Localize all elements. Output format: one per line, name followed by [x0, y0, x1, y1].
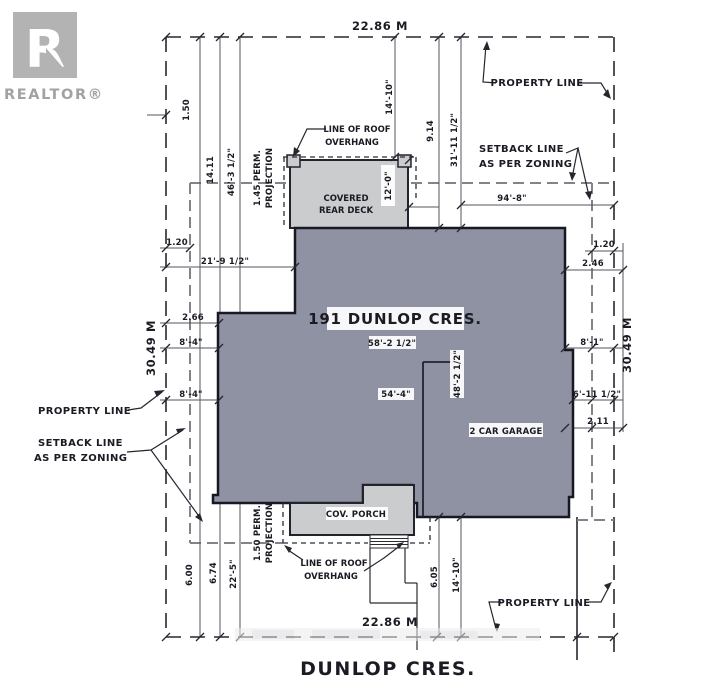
roof-overhang-label-bottom-2: OVERHANG: [304, 572, 358, 582]
dim-right-94: 94'-8": [497, 194, 527, 204]
arrowhead: [585, 191, 592, 200]
dim-right-246: 2.46: [582, 259, 604, 269]
dim-left-84-upper: 8'-4": [179, 338, 202, 348]
watermark-blob: [312, 630, 380, 639]
watermark-blob: [252, 630, 294, 639]
dim-58: 58'-2 1/2": [368, 339, 416, 349]
roof-overhang-label-top-1: LINE OF ROOF: [323, 125, 390, 135]
leader-setback-top-b: [578, 148, 589, 196]
leader-setback-left-a: [127, 430, 183, 452]
leader-overhang-top: [295, 129, 326, 154]
house: [213, 228, 573, 517]
roof-overhang-label-bottom-1: LINE OF ROOF: [300, 559, 367, 569]
watermark: [235, 628, 540, 641]
dim-48: 48'-2 1/2": [453, 350, 463, 398]
property-line-label-top: PROPERTY LINE: [491, 78, 584, 89]
property-line-label-bottom: PROPERTY LINE: [498, 598, 591, 609]
dim-bottom-perm2: PROJECTION: [265, 503, 275, 564]
street-name-label: DUNLOP CRES.: [300, 658, 476, 680]
arrowhead: [569, 172, 576, 181]
as-per-zoning-label-left: AS PER ZONING: [34, 453, 127, 464]
dim-left-perm: 1.45 PERM.: [253, 150, 263, 206]
dim-left-84-lower: 8'-4": [179, 390, 202, 400]
dim-bottom-600: 6.00: [185, 564, 195, 586]
dim-right-depth: 30.49 M: [620, 317, 634, 373]
dim-left-266: 2.66: [182, 313, 204, 323]
roof-overhang-label-top-2: OVERHANG: [325, 138, 379, 148]
dim-bottom-perm: 1.50 PERM.: [253, 505, 263, 561]
realtor-logo: R REALTOR®: [4, 12, 104, 103]
garage-label: 2 CAR GARAGE: [469, 427, 542, 437]
arrowhead: [604, 582, 612, 590]
dim-left-120: 1.20: [166, 238, 188, 248]
dim-top-31: 31'-11 1/2": [450, 113, 460, 167]
realtor-brand-text: REALTOR®: [4, 87, 104, 103]
dim-top-width: 22.86 M: [352, 19, 408, 33]
leader-setback-left-b: [151, 450, 201, 519]
dim-bottom-674: 6.74: [209, 562, 219, 584]
arrowhead: [603, 89, 611, 99]
setback-line-label-top: SETBACK LINE: [479, 144, 564, 155]
porch-steps: [370, 535, 408, 548]
dim-bottom-width: 22.86 M: [362, 615, 418, 629]
dim-12: 12'-0": [384, 171, 394, 201]
house-address-label: 191 DUNLOP CRES.: [308, 310, 482, 328]
dim-bottom-605: 6.05: [430, 566, 440, 588]
dim-top-1410: 14'-10": [385, 79, 395, 115]
dim-left-depth: 30.49 M: [144, 320, 158, 376]
dim-left-perm2: PROJECTION: [265, 148, 275, 209]
arrowhead: [195, 513, 203, 522]
dim-top-914: 9.14: [426, 120, 436, 142]
arrowhead: [154, 390, 165, 397]
porch-label: COV. PORCH: [326, 510, 386, 520]
dim-left-46: 46'-3 1/2": [227, 148, 237, 196]
site-plan-drawing: R REALTOR®: [0, 0, 709, 691]
dim-right-611: 6'-11 1/2": [573, 390, 621, 400]
arrowhead: [483, 41, 490, 50]
setback-line-label-left: SETBACK LINE: [38, 438, 123, 449]
house-footprint: [213, 228, 573, 517]
property-line-label-left: PROPERTY LINE: [38, 406, 131, 417]
deck-label-2: REAR DECK: [319, 206, 374, 216]
dim-right-120: 1.20: [593, 240, 615, 250]
dim-left-150: 1.50: [182, 99, 192, 121]
watermark-blob: [420, 631, 478, 639]
dim-54: 54'-4": [381, 390, 411, 400]
dim-left-1411: 14.11: [206, 156, 216, 184]
as-per-zoning-label-top: AS PER ZONING: [479, 159, 572, 170]
dim-bottom-225: 22'-5": [229, 559, 239, 589]
dim-bottom-1410: 14'-10": [452, 557, 462, 593]
dim-left-21: 21'-9 1/2": [201, 257, 249, 267]
deck-label-1: COVERED: [323, 194, 368, 204]
dim-right-81: 8'-1": [580, 338, 603, 348]
dim-right-211: 2.11: [587, 417, 609, 427]
